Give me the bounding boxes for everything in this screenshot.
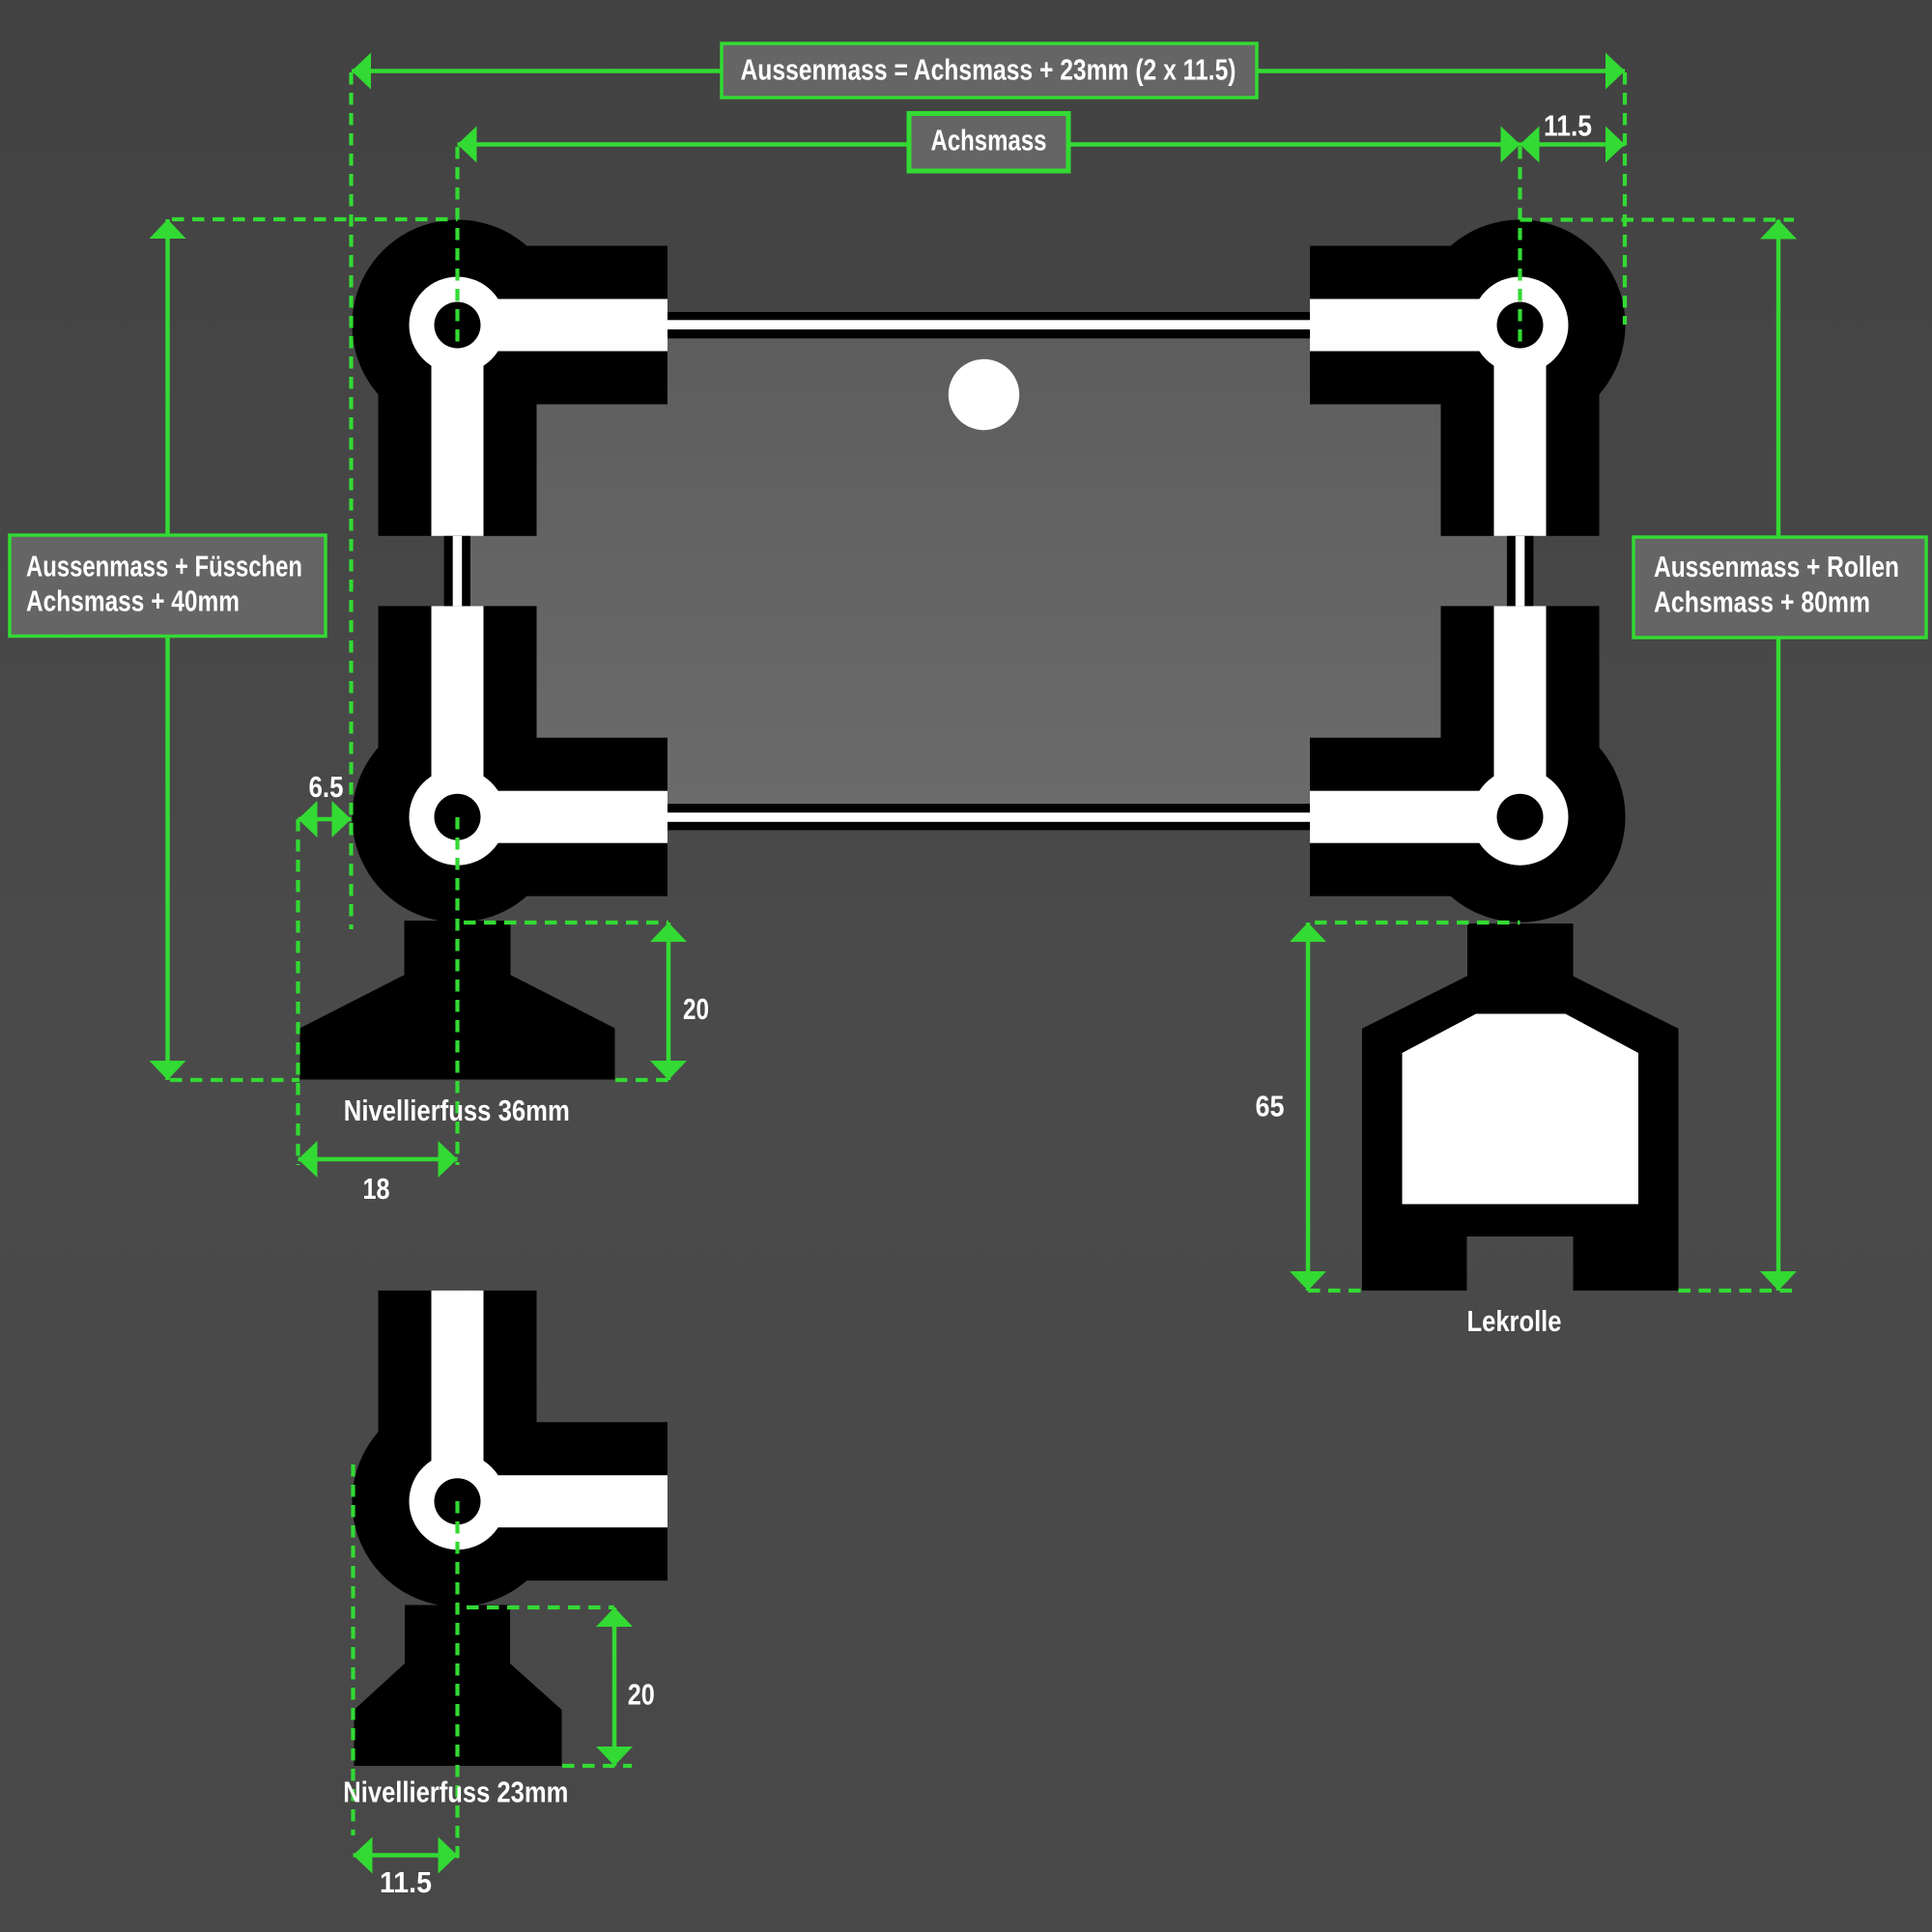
svg-text:Aussenmass + Füsschen: Aussenmass + Füsschen bbox=[26, 550, 302, 583]
svg-text:Achsmass + 40mm: Achsmass + 40mm bbox=[26, 584, 240, 618]
svg-text:Achsmass + 80mm: Achsmass + 80mm bbox=[1654, 585, 1870, 619]
svg-text:Nivellierfuss 36mm: Nivellierfuss 36mm bbox=[344, 1094, 570, 1127]
svg-text:Aussenmass = Achsmass + 23mm (: Aussenmass = Achsmass + 23mm (2 x 11.5) bbox=[741, 53, 1236, 87]
svg-text:18: 18 bbox=[363, 1172, 390, 1206]
svg-text:65: 65 bbox=[1256, 1090, 1285, 1123]
svg-text:11.5: 11.5 bbox=[380, 1865, 432, 1899]
svg-text:Aussenmass + Rollen: Aussenmass + Rollen bbox=[1654, 550, 1899, 583]
svg-text:11.5: 11.5 bbox=[1544, 109, 1592, 143]
svg-text:Lekrolle: Lekrolle bbox=[1467, 1304, 1562, 1338]
svg-text:20: 20 bbox=[683, 992, 709, 1026]
svg-text:20: 20 bbox=[628, 1678, 655, 1712]
svg-text:Nivellierfuss 23mm: Nivellierfuss 23mm bbox=[343, 1776, 568, 1809]
svg-text:6.5: 6.5 bbox=[309, 770, 344, 804]
svg-text:Achsmass: Achsmass bbox=[931, 124, 1047, 157]
